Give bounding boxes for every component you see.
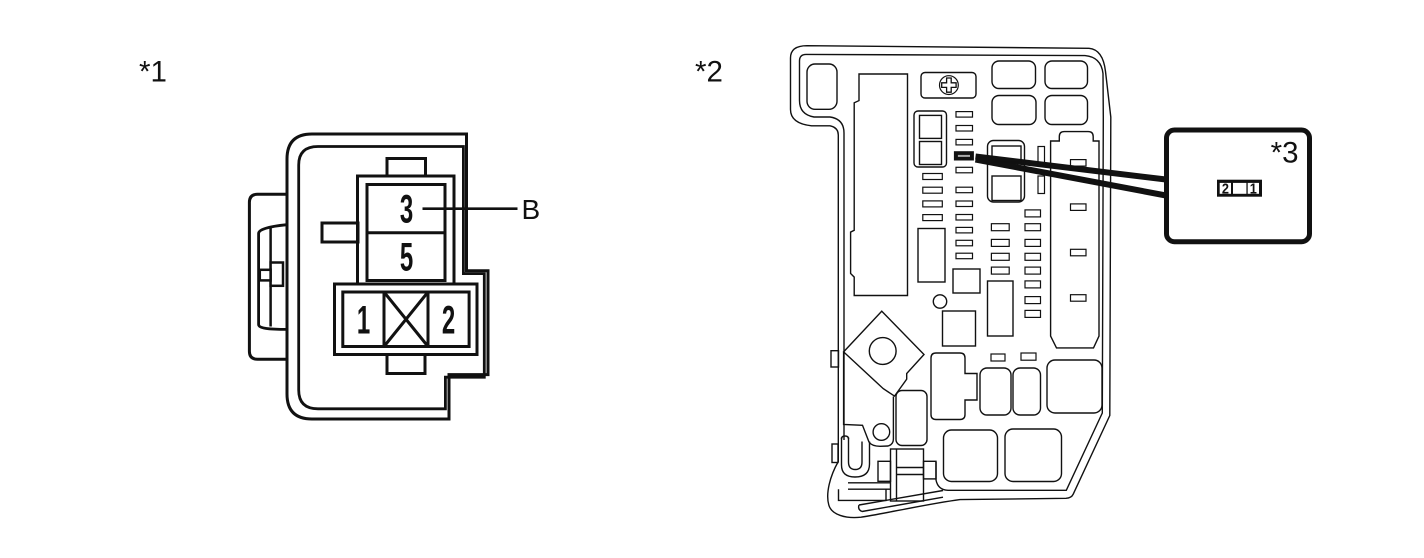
svg-text:1: 1 <box>357 297 370 342</box>
svg-text:*1: *1 <box>139 55 167 88</box>
svg-text:5: 5 <box>400 234 413 279</box>
svg-text:*3: *3 <box>1271 137 1299 170</box>
svg-text:2: 2 <box>1222 180 1229 197</box>
svg-text:B: B <box>522 194 541 225</box>
svg-text:3: 3 <box>400 186 413 231</box>
svg-text:1: 1 <box>1250 180 1257 197</box>
svg-text:2: 2 <box>442 297 455 342</box>
svg-text:*2: *2 <box>695 55 723 88</box>
